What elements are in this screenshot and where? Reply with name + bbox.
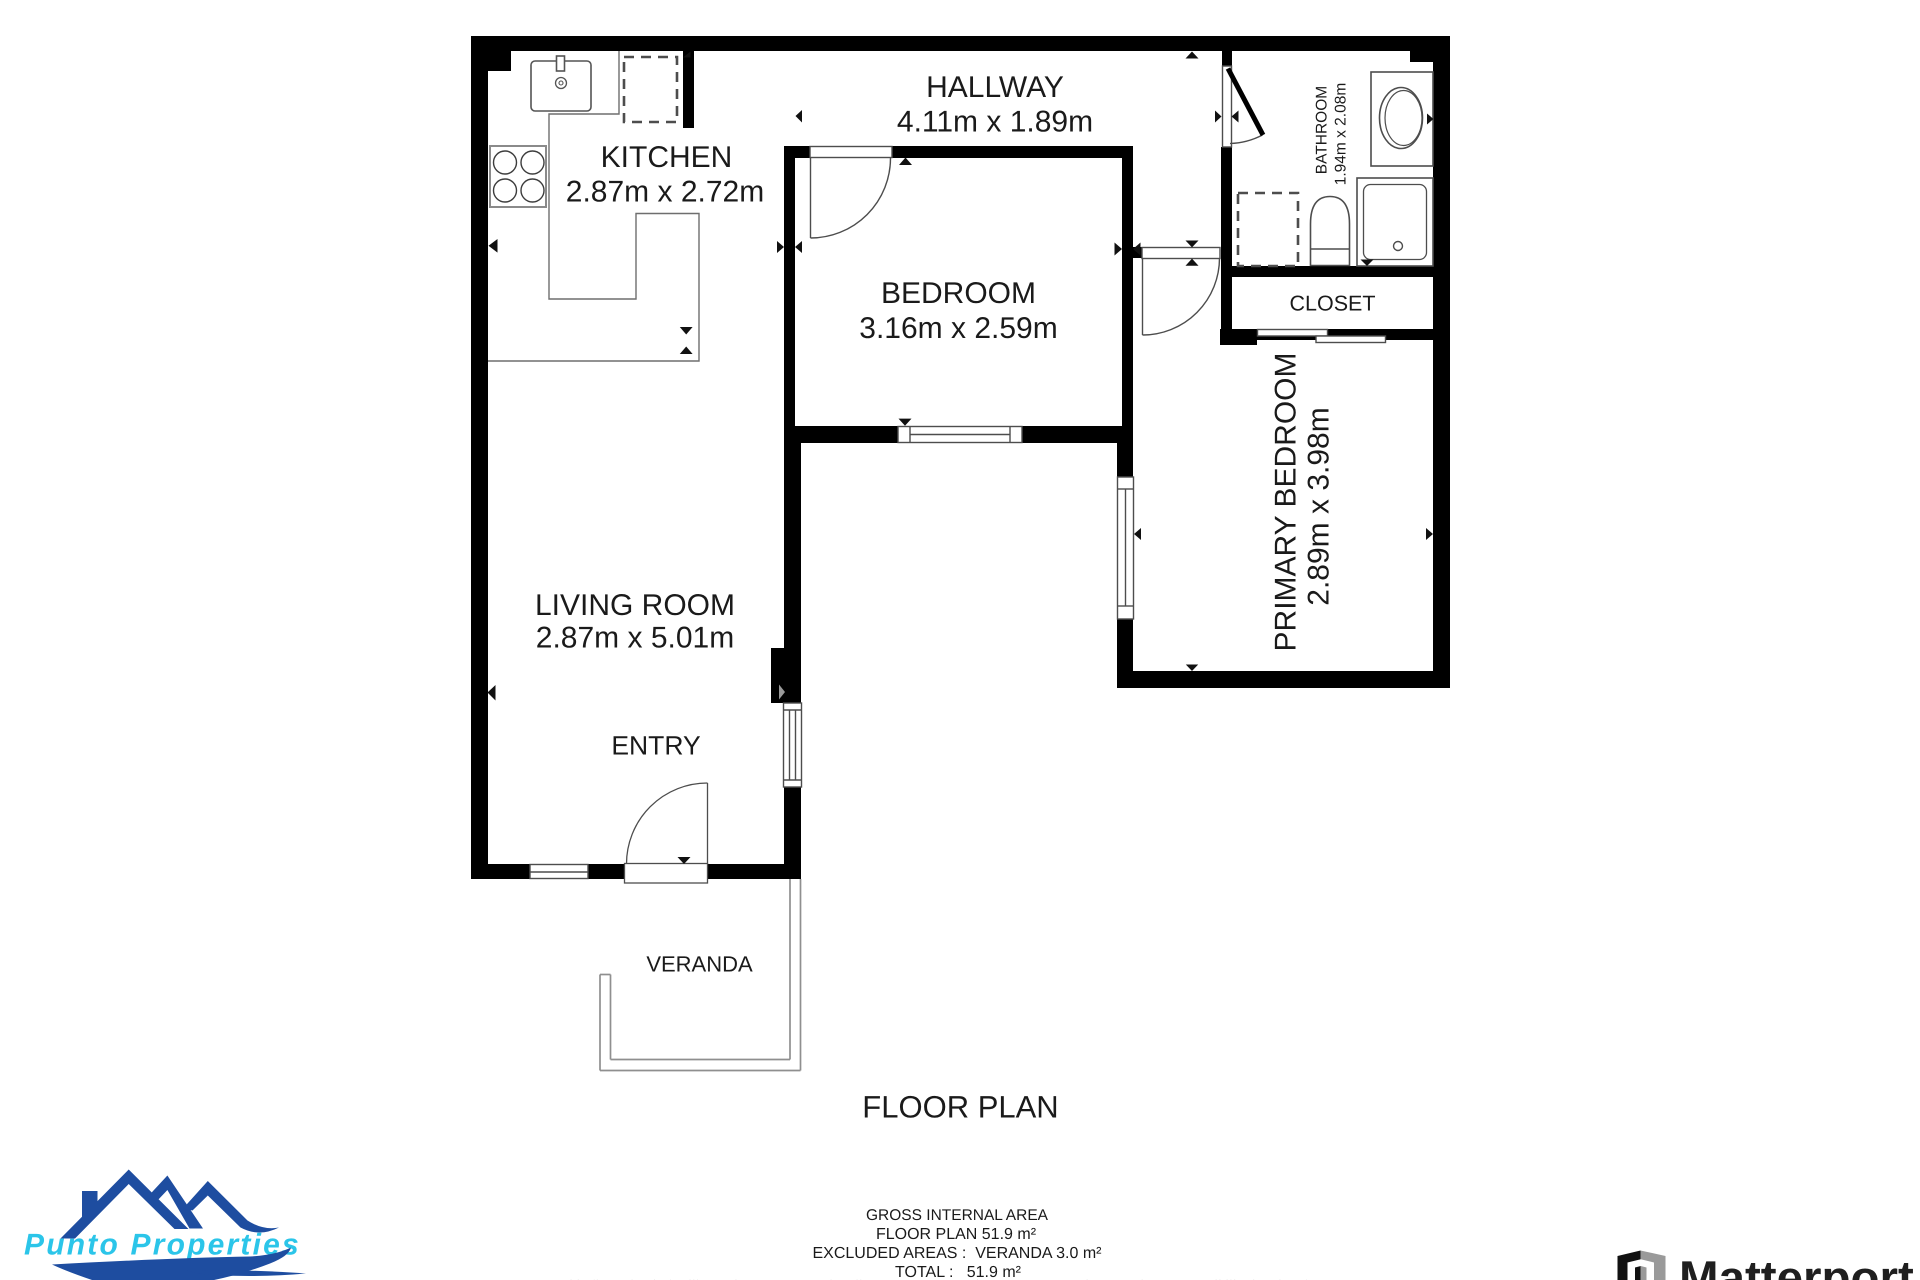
svg-text:LIVING ROOM: LIVING ROOM bbox=[535, 589, 735, 622]
svg-text:FLOOR PLAN: FLOOR PLAN bbox=[862, 1090, 1058, 1125]
svg-text:VERANDA: VERANDA bbox=[646, 952, 753, 977]
svg-text:2.87m x 5.01m: 2.87m x 5.01m bbox=[536, 622, 734, 655]
svg-text:KITCHEN: KITCHEN bbox=[601, 141, 733, 174]
svg-text:ENTRY: ENTRY bbox=[611, 731, 701, 761]
svg-text:3.16m x 2.59m: 3.16m x 2.59m bbox=[859, 312, 1057, 345]
svg-text:FLOOR PLAN 51.9 m²: FLOOR PLAN 51.9 m² bbox=[876, 1226, 1037, 1243]
svg-text:1.94m x 2.08m: 1.94m x 2.08m bbox=[1333, 83, 1350, 186]
svg-text:GROSS INTERNAL AREA: GROSS INTERNAL AREA bbox=[866, 1207, 1049, 1224]
svg-text:2.89m x 3.98m: 2.89m x 3.98m bbox=[1303, 407, 1336, 605]
svg-text:BATHROOM: BATHROOM bbox=[1314, 86, 1331, 174]
svg-text:CLOSET: CLOSET bbox=[1289, 292, 1375, 316]
svg-text:HALLWAY: HALLWAY bbox=[926, 71, 1064, 104]
svg-text:Matterport: Matterport bbox=[1679, 1252, 1914, 1280]
svg-text:2.87m x 2.72m: 2.87m x 2.72m bbox=[566, 176, 764, 209]
svg-text:EXCLUDED AREAS : VERANDA 3.0: EXCLUDED AREAS : VERANDA 3.0 m² bbox=[813, 1245, 1103, 1262]
svg-text:BEDROOM: BEDROOM bbox=[881, 277, 1036, 310]
svg-text:4.11m x 1.89m: 4.11m x 1.89m bbox=[897, 106, 1093, 139]
svg-text:PRIMARY BEDROOM: PRIMARY BEDROOM bbox=[1270, 353, 1303, 652]
